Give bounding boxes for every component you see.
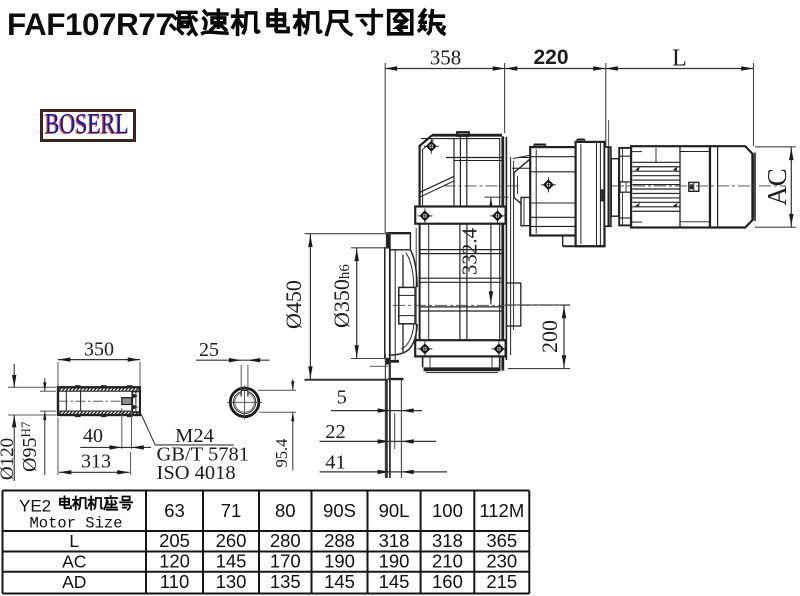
svg-text:22: 22 bbox=[325, 421, 346, 443]
svg-text:Ø95H7: Ø95H7 bbox=[18, 421, 41, 472]
svg-text:350: 350 bbox=[84, 339, 114, 361]
svg-text:215: 215 bbox=[486, 571, 517, 592]
svg-text:318: 318 bbox=[379, 530, 410, 551]
svg-text:205: 205 bbox=[159, 530, 190, 551]
svg-text:318: 318 bbox=[432, 530, 463, 551]
svg-text:95.4: 95.4 bbox=[272, 439, 291, 468]
svg-text:230: 230 bbox=[486, 551, 517, 572]
svg-text:130: 130 bbox=[216, 571, 247, 592]
svg-text:YE2: YE2 bbox=[19, 497, 51, 516]
svg-text:90S: 90S bbox=[323, 500, 356, 521]
svg-text:Ø450: Ø450 bbox=[281, 280, 306, 329]
svg-text:288: 288 bbox=[324, 530, 355, 551]
svg-text:145: 145 bbox=[324, 571, 355, 592]
svg-text:41: 41 bbox=[325, 451, 346, 473]
svg-text:332.4: 332.4 bbox=[458, 227, 482, 275]
svg-text:ISO 4018: ISO 4018 bbox=[157, 462, 236, 484]
svg-text:Motor Size: Motor Size bbox=[29, 515, 122, 533]
svg-text:71: 71 bbox=[221, 500, 242, 521]
svg-text:190: 190 bbox=[379, 551, 410, 572]
svg-text:190: 190 bbox=[324, 551, 355, 572]
svg-text:313: 313 bbox=[81, 451, 111, 473]
svg-text:80: 80 bbox=[275, 500, 296, 521]
svg-text:AD: AD bbox=[62, 572, 86, 592]
svg-text:110: 110 bbox=[160, 571, 190, 592]
svg-text:5: 5 bbox=[337, 387, 347, 409]
svg-text:25: 25 bbox=[199, 339, 219, 361]
svg-text:210: 210 bbox=[432, 551, 463, 572]
svg-text:135: 135 bbox=[270, 571, 301, 592]
svg-text:220: 220 bbox=[533, 46, 568, 69]
svg-text:260: 260 bbox=[216, 530, 247, 551]
svg-text:112M: 112M bbox=[479, 500, 524, 521]
svg-text:L: L bbox=[672, 46, 687, 72]
svg-text:L: L bbox=[69, 531, 79, 551]
svg-text:280: 280 bbox=[270, 530, 301, 551]
svg-text:358: 358 bbox=[430, 46, 462, 70]
svg-text:Ø120: Ø120 bbox=[0, 438, 18, 480]
svg-text:170: 170 bbox=[270, 551, 301, 572]
svg-text:AC: AC bbox=[762, 168, 792, 206]
svg-text:145: 145 bbox=[216, 551, 247, 572]
svg-text:90L: 90L bbox=[379, 500, 410, 521]
svg-text:AC: AC bbox=[62, 552, 86, 572]
svg-text:160: 160 bbox=[432, 571, 463, 592]
svg-text:120: 120 bbox=[159, 551, 190, 572]
svg-text:200: 200 bbox=[537, 320, 562, 353]
svg-text:365: 365 bbox=[486, 530, 517, 551]
svg-text:100: 100 bbox=[432, 500, 463, 521]
svg-text:63: 63 bbox=[164, 500, 185, 521]
svg-text:145: 145 bbox=[379, 571, 410, 592]
svg-text:Ø350h6: Ø350h6 bbox=[329, 264, 354, 328]
svg-text:40: 40 bbox=[83, 425, 103, 447]
